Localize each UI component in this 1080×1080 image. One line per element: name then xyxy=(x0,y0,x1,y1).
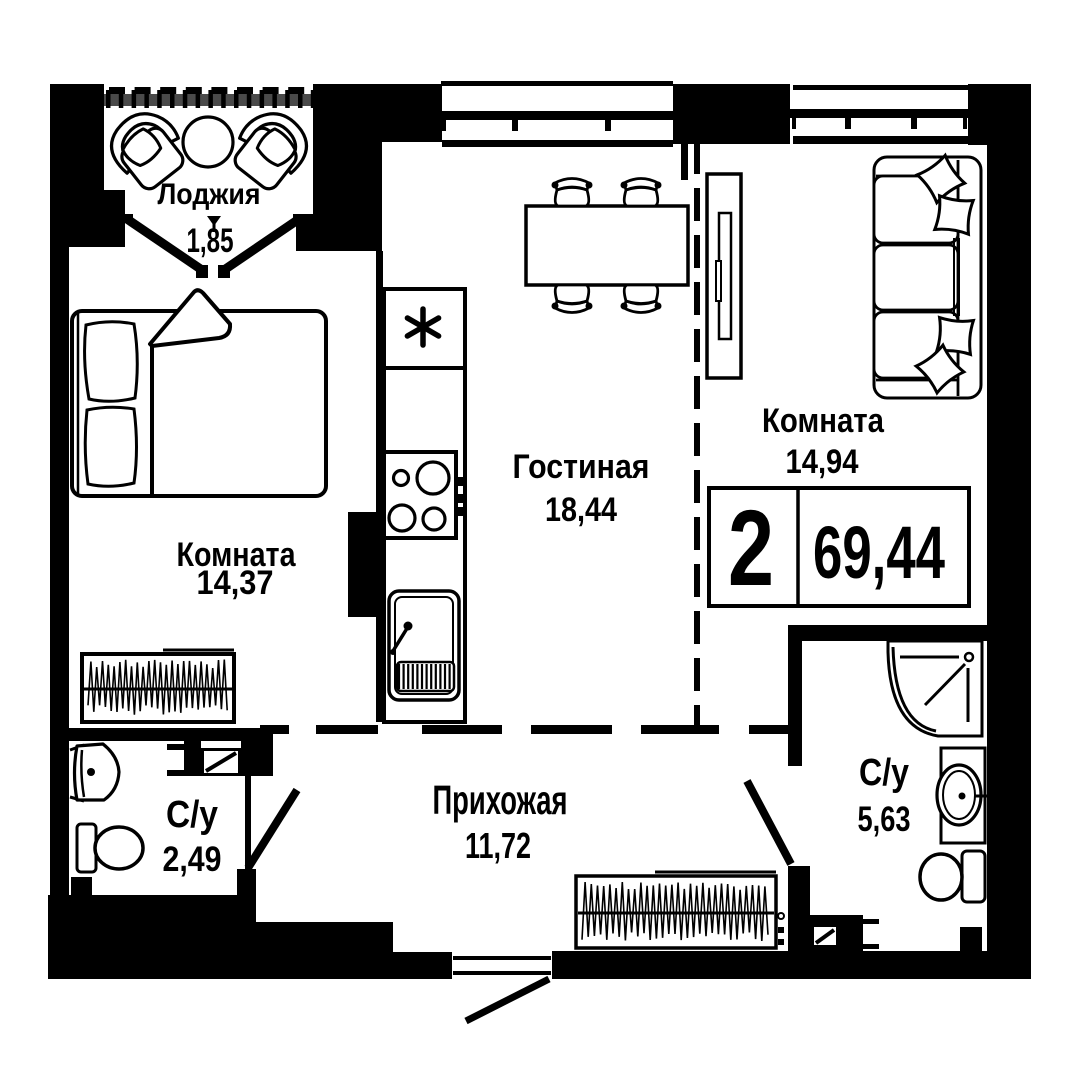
svg-text:69,44: 69,44 xyxy=(813,511,945,594)
svg-text:Прихожая: Прихожая xyxy=(433,777,568,823)
svg-text:2: 2 xyxy=(728,487,774,608)
svg-text:11,72: 11,72 xyxy=(465,825,531,866)
svg-text:2,49: 2,49 xyxy=(163,840,222,879)
svg-text:С/у: С/у xyxy=(859,752,909,794)
svg-text:1,85: 1,85 xyxy=(187,222,234,260)
svg-text:14,37: 14,37 xyxy=(197,564,274,602)
svg-text:Комната: Комната xyxy=(762,402,885,440)
svg-text:С/у: С/у xyxy=(166,794,218,836)
svg-text:Гостиная: Гостиная xyxy=(513,448,650,486)
svg-text:Лоджия: Лоджия xyxy=(158,178,261,211)
svg-text:5,63: 5,63 xyxy=(858,800,911,839)
svg-text:14,94: 14,94 xyxy=(786,443,859,481)
svg-text:18,44: 18,44 xyxy=(545,491,617,529)
